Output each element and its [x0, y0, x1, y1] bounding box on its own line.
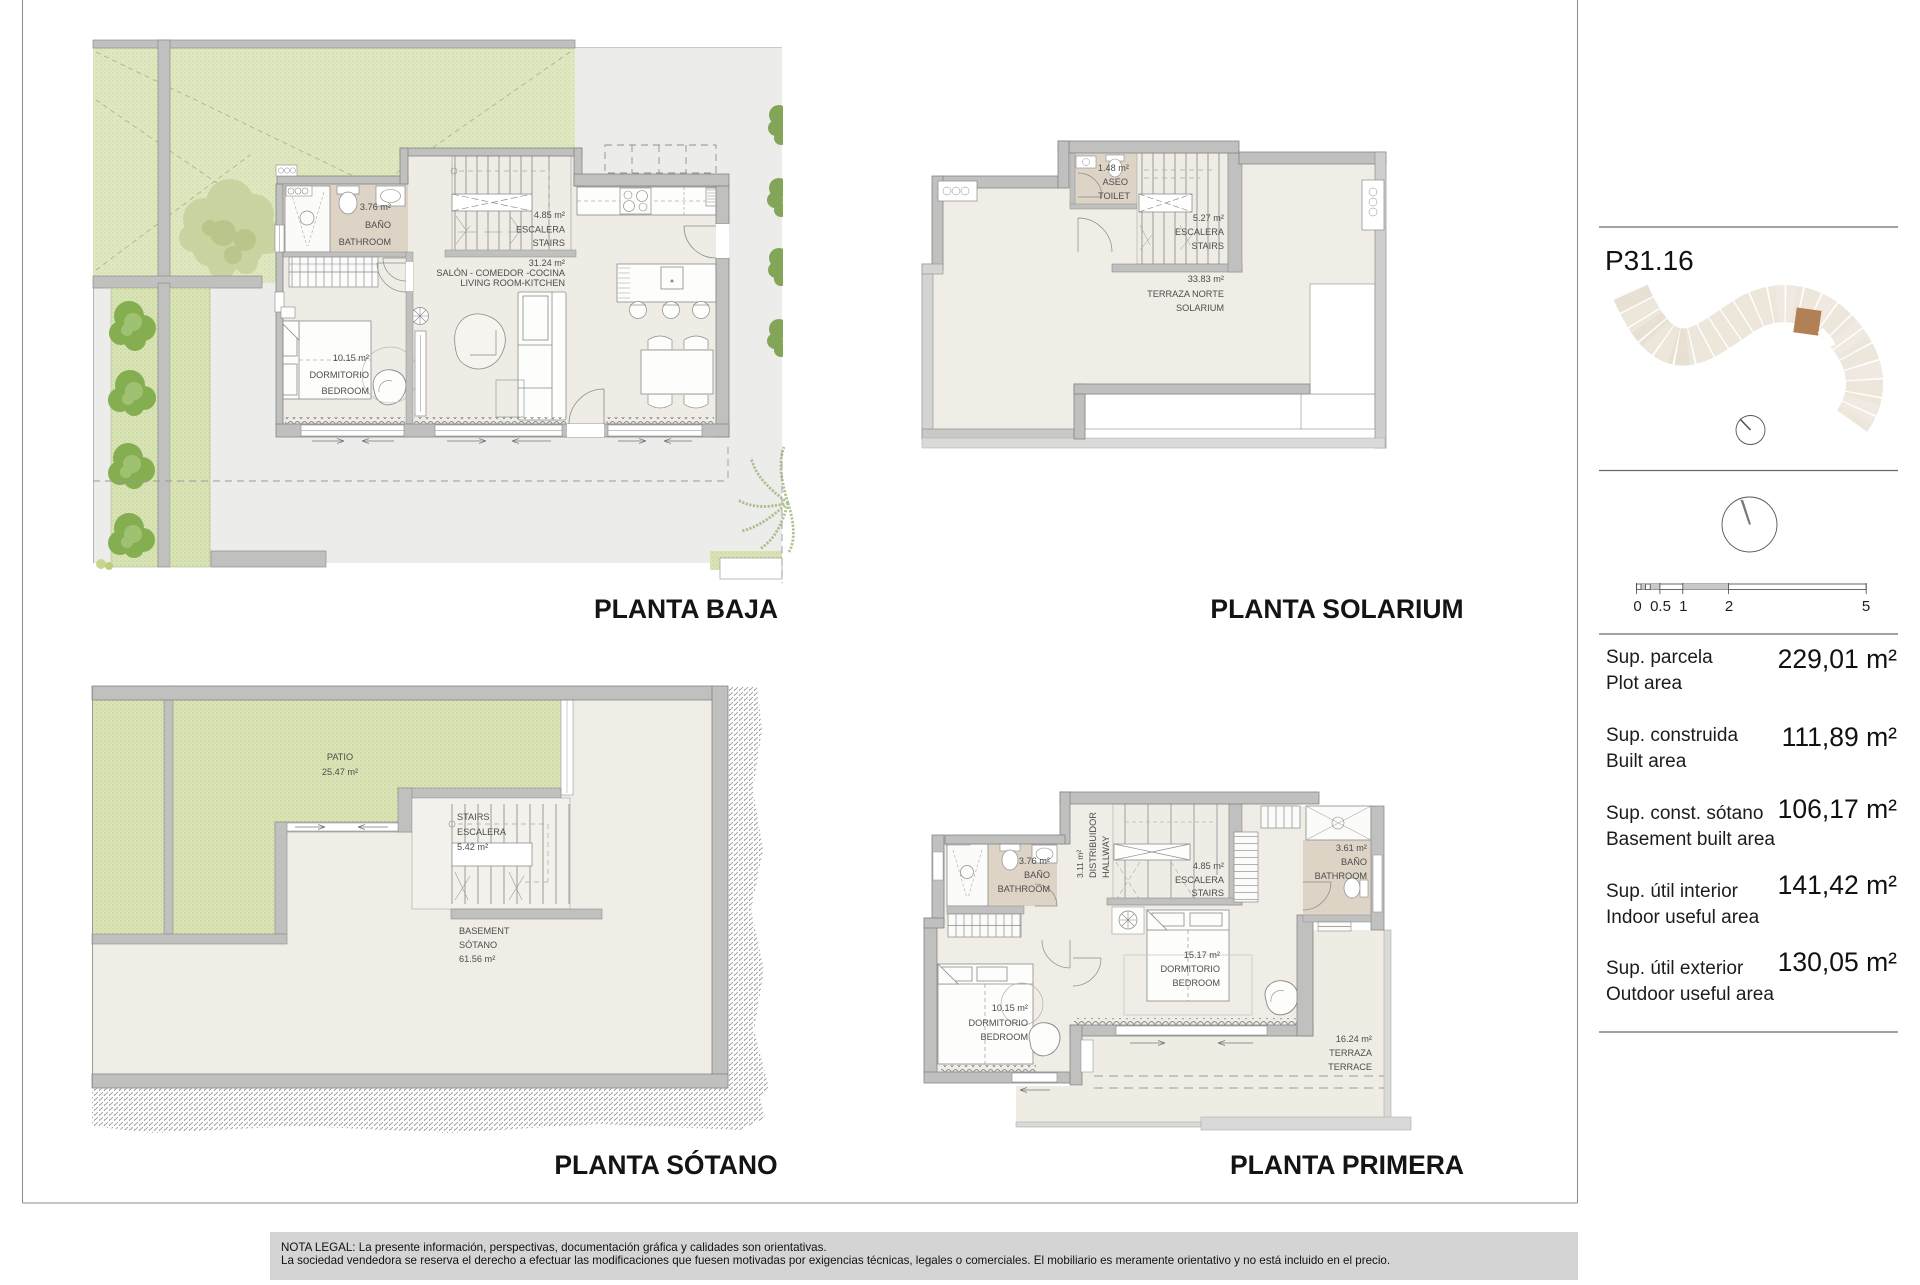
svg-text:4.85 m²: 4.85 m² — [1193, 861, 1224, 871]
svg-text:TOILET: TOILET — [1098, 191, 1130, 201]
svg-text:10.15 m²: 10.15 m² — [992, 1003, 1028, 1013]
svg-text:PATIO: PATIO — [327, 752, 353, 762]
svg-text:16.24 m²: 16.24 m² — [1336, 1034, 1372, 1044]
svg-text:33.83 m²: 33.83 m² — [1188, 274, 1224, 284]
svg-text:STAIRS: STAIRS — [1191, 888, 1224, 898]
svg-text:31.24 m²: 31.24 m² — [529, 258, 565, 268]
svg-text:BATHROOM: BATHROOM — [1315, 871, 1367, 881]
svg-text:P31.16: P31.16 — [1605, 245, 1694, 276]
svg-text:SÓTANO: SÓTANO — [459, 940, 497, 950]
svg-text:BEDROOM: BEDROOM — [1173, 978, 1220, 988]
svg-text:106,17 m²: 106,17 m² — [1778, 794, 1897, 824]
svg-text:0.5: 0.5 — [1650, 598, 1671, 615]
svg-text:229,01 m²: 229,01 m² — [1778, 644, 1897, 674]
svg-text:DORMITORIO: DORMITORIO — [968, 1018, 1028, 1028]
svg-text:Plot area: Plot area — [1606, 673, 1682, 694]
svg-text:PLANTA BAJA: PLANTA BAJA — [594, 594, 778, 624]
svg-text:ESCALERA: ESCALERA — [457, 827, 507, 837]
svg-text:La sociedad vendedora se reser: La sociedad vendedora se reserva el dere… — [281, 1254, 1390, 1267]
svg-text:5.42 m²: 5.42 m² — [457, 842, 488, 852]
svg-text:DORMITORIO: DORMITORIO — [309, 370, 369, 380]
svg-text:SALÓN - COMEDOR -COCINA: SALÓN - COMEDOR -COCINA — [436, 268, 566, 278]
svg-text:4.85 m²: 4.85 m² — [534, 210, 565, 220]
svg-text:ESCALERA: ESCALERA — [1175, 227, 1225, 237]
svg-text:25.47 m²: 25.47 m² — [322, 767, 358, 777]
svg-text:PLANTA PRIMERA: PLANTA PRIMERA — [1230, 1150, 1464, 1180]
svg-text:2: 2 — [1725, 598, 1733, 615]
svg-text:BATHROOM: BATHROOM — [998, 884, 1050, 894]
svg-text:TERRACE: TERRACE — [1328, 1062, 1372, 1072]
svg-text:3.76 m²: 3.76 m² — [360, 202, 391, 212]
svg-text:0: 0 — [1633, 598, 1641, 615]
svg-text:LIVING ROOM-KITCHEN: LIVING ROOM-KITCHEN — [460, 278, 565, 288]
svg-text:Sup. parcela: Sup. parcela — [1606, 647, 1713, 668]
svg-text:TERRAZA NORTE: TERRAZA NORTE — [1147, 289, 1224, 299]
svg-text:STAIRS: STAIRS — [532, 238, 565, 248]
svg-text:BAÑO: BAÑO — [365, 220, 391, 230]
svg-text:Indoor useful area: Indoor useful area — [1606, 907, 1760, 928]
svg-text:141,42 m²: 141,42 m² — [1778, 870, 1897, 900]
svg-text:130,05 m²: 130,05 m² — [1778, 947, 1897, 977]
svg-text:10.15 m²: 10.15 m² — [333, 353, 369, 363]
svg-text:5.27 m²: 5.27 m² — [1193, 213, 1224, 223]
svg-text:DISTRIBUIDOR: DISTRIBUIDOR — [1088, 812, 1098, 878]
svg-text:Sup. const. sótano: Sup. const. sótano — [1606, 803, 1763, 824]
svg-text:111,89 m²: 111,89 m² — [1782, 722, 1898, 752]
svg-text:BASEMENT: BASEMENT — [459, 926, 510, 936]
svg-text:5: 5 — [1862, 598, 1870, 615]
svg-text:PLANTA SÓTANO: PLANTA SÓTANO — [554, 1150, 777, 1180]
svg-text:ESCALERA: ESCALERA — [1175, 875, 1225, 885]
svg-text:1.48 m²: 1.48 m² — [1098, 163, 1129, 173]
svg-text:3.76 m²: 3.76 m² — [1019, 856, 1050, 866]
svg-text:NOTA LEGAL: La presente inform: NOTA LEGAL: La presente información, per… — [281, 1241, 827, 1254]
svg-text:HALLWAY: HALLWAY — [1101, 836, 1111, 878]
svg-text:1: 1 — [1679, 598, 1687, 615]
svg-text:STAIRS: STAIRS — [457, 812, 490, 822]
svg-text:Sup. útil interior: Sup. útil interior — [1606, 881, 1739, 902]
svg-text:Basement built area: Basement built area — [1606, 829, 1775, 850]
svg-text:BEDROOM: BEDROOM — [981, 1032, 1028, 1042]
svg-text:Outdoor useful area: Outdoor useful area — [1606, 984, 1774, 1005]
svg-text:STAIRS: STAIRS — [1191, 241, 1224, 251]
svg-text:15.17 m²: 15.17 m² — [1184, 950, 1220, 960]
svg-text:3.11 m²: 3.11 m² — [1075, 850, 1085, 878]
svg-text:ASEO: ASEO — [1102, 177, 1128, 187]
svg-text:61.56 m²: 61.56 m² — [459, 954, 495, 964]
svg-text:BEDROOM: BEDROOM — [322, 386, 369, 396]
svg-text:DORMITORIO: DORMITORIO — [1160, 964, 1220, 974]
svg-text:Built area: Built area — [1606, 751, 1687, 772]
svg-text:ESCALERA: ESCALERA — [516, 225, 566, 235]
svg-text:BAÑO: BAÑO — [1341, 857, 1367, 867]
svg-text:SOLARIUM: SOLARIUM — [1176, 303, 1224, 313]
svg-text:3.61 m²: 3.61 m² — [1336, 843, 1367, 853]
svg-text:PLANTA SOLARIUM: PLANTA SOLARIUM — [1210, 594, 1463, 624]
svg-text:BAÑO: BAÑO — [1024, 870, 1050, 880]
svg-text:Sup. construida: Sup. construida — [1606, 725, 1738, 746]
svg-text:Sup. útil exterior: Sup. útil exterior — [1606, 958, 1744, 979]
svg-text:TERRAZA: TERRAZA — [1329, 1048, 1373, 1058]
svg-text:BATHROOM: BATHROOM — [339, 237, 391, 247]
